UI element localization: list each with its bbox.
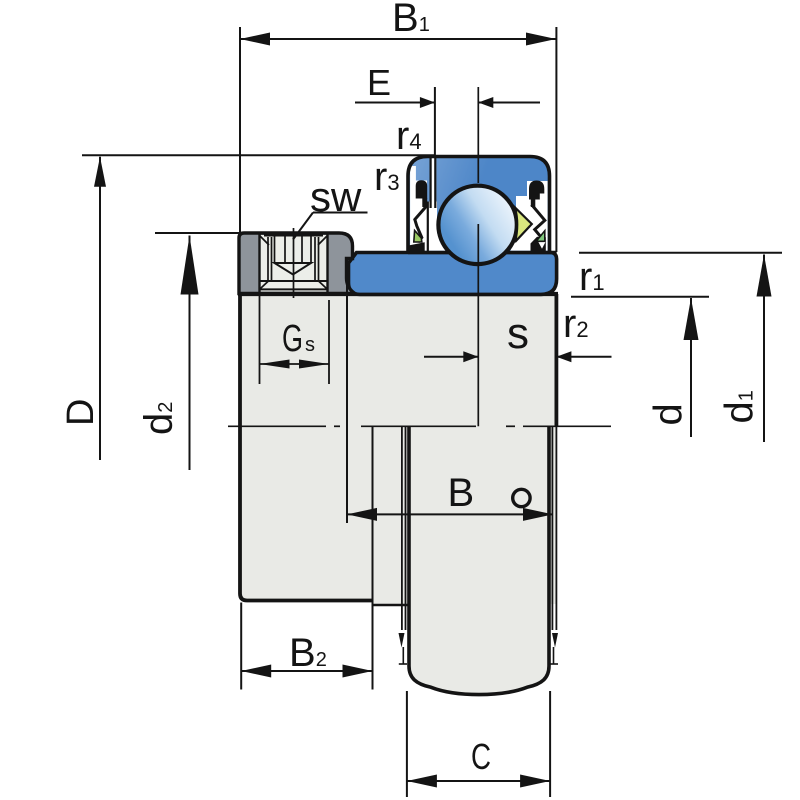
- svg-text:s: s: [507, 309, 529, 358]
- svg-text:G: G: [282, 318, 303, 360]
- svg-text:s: s: [305, 334, 315, 356]
- svg-text:B: B: [448, 471, 475, 515]
- svg-text:d: d: [647, 403, 691, 425]
- svg-text:C: C: [471, 736, 491, 777]
- svg-text:E: E: [367, 62, 391, 103]
- svg-text:D: D: [60, 399, 102, 426]
